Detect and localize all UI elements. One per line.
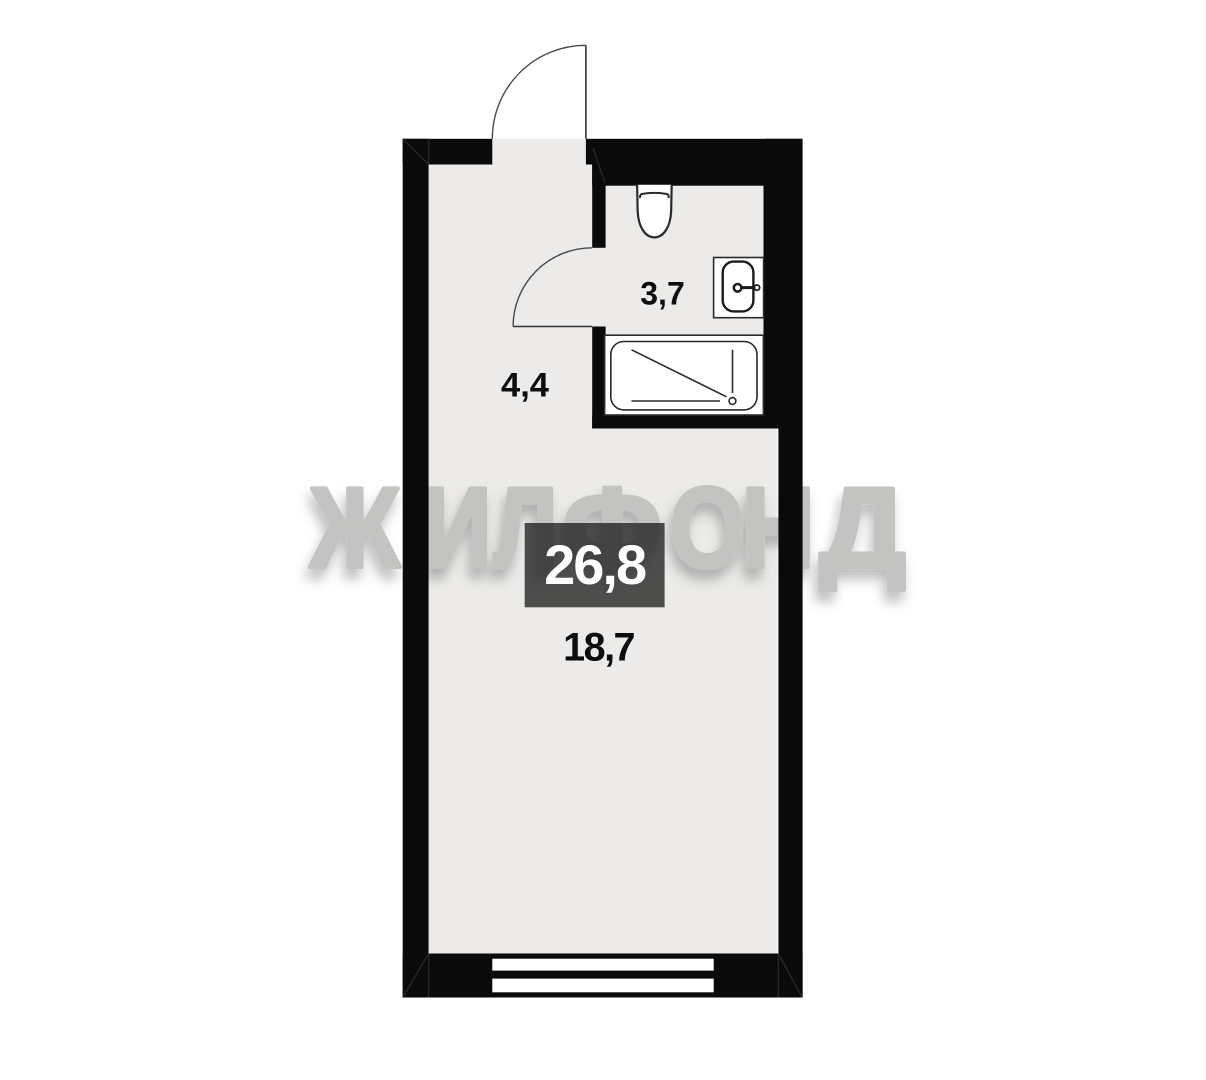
svg-text:Ж: Ж [309, 464, 401, 592]
svg-text:4,4: 4,4 [501, 366, 549, 404]
svg-text:3,7: 3,7 [640, 276, 684, 312]
svg-text:Н: Н [741, 464, 815, 591]
svg-text:Д: Д [819, 465, 906, 593]
svg-text:И: И [424, 465, 492, 593]
svg-text:18,7: 18,7 [563, 626, 634, 670]
svg-text:О: О [669, 465, 745, 592]
svg-text:26,8: 26,8 [544, 533, 646, 596]
